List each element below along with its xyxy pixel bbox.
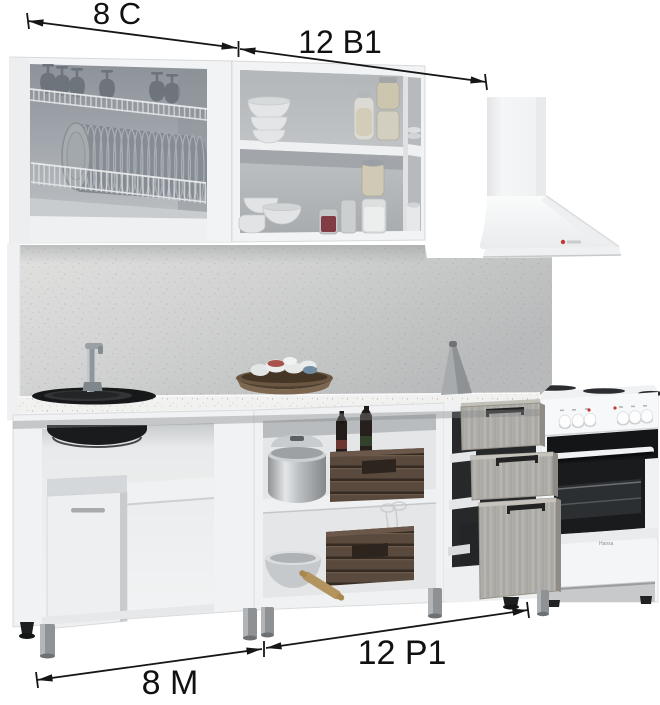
svg-text:Hansa: Hansa [599,541,614,547]
svg-text:12 В1: 12 В1 [298,24,382,60]
svg-text:8 С: 8 С [93,0,141,31]
svg-text:8 М: 8 М [142,664,199,700]
svg-text:12 Р1: 12 Р1 [358,634,447,672]
